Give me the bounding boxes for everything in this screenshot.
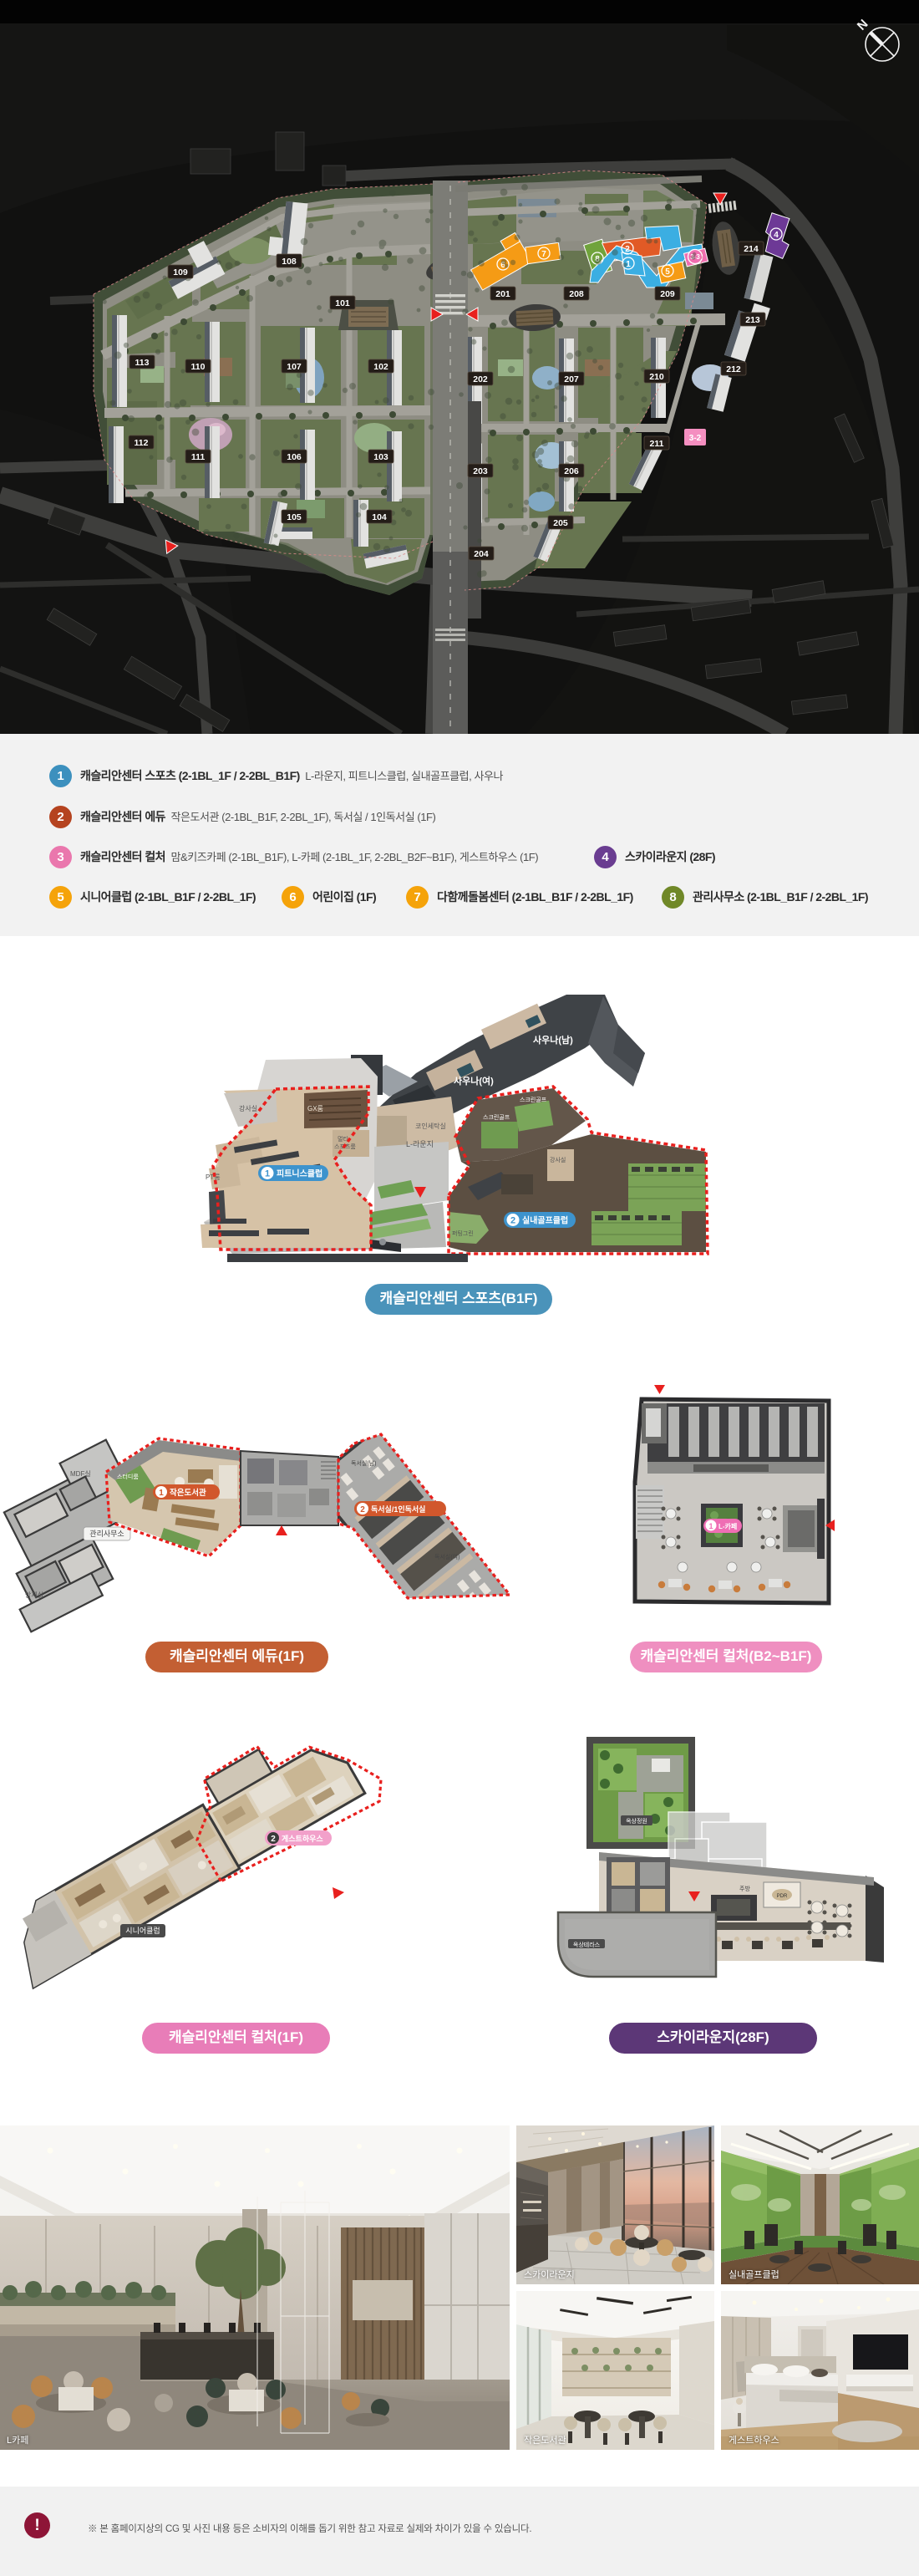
svg-text:스터디룸: 스터디룸 xyxy=(117,1473,139,1480)
svg-text:107: 107 xyxy=(287,362,302,372)
svg-text:퍼팅그린: 퍼팅그린 xyxy=(452,1229,474,1237)
svg-text:강사실: 강사실 xyxy=(550,1156,566,1163)
svg-text:사우나(남): 사우나(남) xyxy=(533,1034,573,1046)
svg-text:105: 105 xyxy=(287,512,302,522)
svg-text:옥상정원: 옥상정원 xyxy=(626,1817,647,1825)
svg-text:GX룸: GX룸 xyxy=(307,1105,323,1112)
svg-text:210: 210 xyxy=(649,372,664,382)
svg-text:1: 1 xyxy=(708,1522,713,1530)
svg-text:작은도서관: 작은도서관 xyxy=(170,1488,206,1498)
svg-text:103: 103 xyxy=(373,452,388,462)
svg-text:MDF실: MDF실 xyxy=(70,1469,91,1478)
svg-text:7: 7 xyxy=(541,250,546,259)
svg-text:스크린골프: 스크린골프 xyxy=(483,1113,510,1121)
svg-text:관리사무소: 관리사무소 xyxy=(89,1530,124,1538)
svg-text:스크린골프: 스크린골프 xyxy=(520,1096,547,1103)
svg-text:L-카페: L-카페 xyxy=(718,1522,737,1530)
svg-text:109: 109 xyxy=(173,267,188,277)
svg-text:201: 201 xyxy=(495,289,510,299)
svg-text:204: 204 xyxy=(474,549,489,559)
svg-text:211: 211 xyxy=(650,439,664,449)
svg-text:주방: 주방 xyxy=(739,1885,750,1892)
svg-text:2: 2 xyxy=(360,1505,365,1515)
svg-text:202: 202 xyxy=(473,374,488,384)
svg-text:사우나(여): 사우나(여) xyxy=(454,1075,494,1087)
svg-text:독서실/1인독서실: 독서실/1인독서실 xyxy=(371,1504,425,1514)
svg-text:독서실(여): 독서실(여) xyxy=(434,1553,459,1560)
svg-text:110: 110 xyxy=(191,362,206,372)
svg-text:214: 214 xyxy=(744,244,759,254)
svg-text:102: 102 xyxy=(373,362,388,372)
svg-text:207: 207 xyxy=(564,374,579,384)
svg-text:피트니스클럽: 피트니스클럽 xyxy=(277,1168,322,1179)
svg-text:PT룸: PT룸 xyxy=(206,1173,221,1181)
svg-text:L-라운지: L-라운지 xyxy=(406,1140,434,1148)
svg-text:방재실: 방재실 xyxy=(25,1591,43,1599)
svg-text:게스트하우스: 게스트하우스 xyxy=(282,1834,323,1843)
svg-text:2: 2 xyxy=(510,1216,515,1226)
svg-text:독서실(남): 독서실(남) xyxy=(351,1459,376,1467)
svg-text:2: 2 xyxy=(625,245,630,254)
svg-text:멀티: 멀티 xyxy=(338,1135,348,1143)
svg-text:2: 2 xyxy=(271,1835,276,1844)
svg-text:213: 213 xyxy=(745,315,760,325)
svg-text:206: 206 xyxy=(564,466,579,476)
svg-text:3-2: 3-2 xyxy=(689,434,702,443)
svg-text:209: 209 xyxy=(660,289,675,299)
svg-text:205: 205 xyxy=(553,518,568,528)
svg-text:강사실: 강사실 xyxy=(239,1104,257,1112)
svg-text:실내골프클럽: 실내골프클럽 xyxy=(522,1215,568,1226)
svg-text:106: 106 xyxy=(287,452,302,462)
svg-text:203: 203 xyxy=(473,466,488,476)
svg-text:104: 104 xyxy=(372,512,387,522)
svg-text:108: 108 xyxy=(282,257,297,267)
svg-text:112: 112 xyxy=(135,438,149,448)
svg-text:113: 113 xyxy=(135,358,150,368)
svg-text:101: 101 xyxy=(335,298,350,308)
svg-text:PDR: PDR xyxy=(777,1894,788,1899)
svg-text:1: 1 xyxy=(265,1169,270,1179)
svg-text:212: 212 xyxy=(726,364,741,374)
svg-text:5: 5 xyxy=(665,267,670,277)
svg-text:시니어클럽: 시니어클럽 xyxy=(125,1927,160,1935)
svg-text:111: 111 xyxy=(191,452,206,462)
svg-text:4: 4 xyxy=(774,231,779,240)
svg-text:코인세탁실: 코인세탁실 xyxy=(415,1122,446,1130)
svg-text:옥상테라스: 옥상테라스 xyxy=(573,1941,601,1948)
svg-text:208: 208 xyxy=(569,289,584,299)
svg-text:1: 1 xyxy=(159,1489,164,1498)
